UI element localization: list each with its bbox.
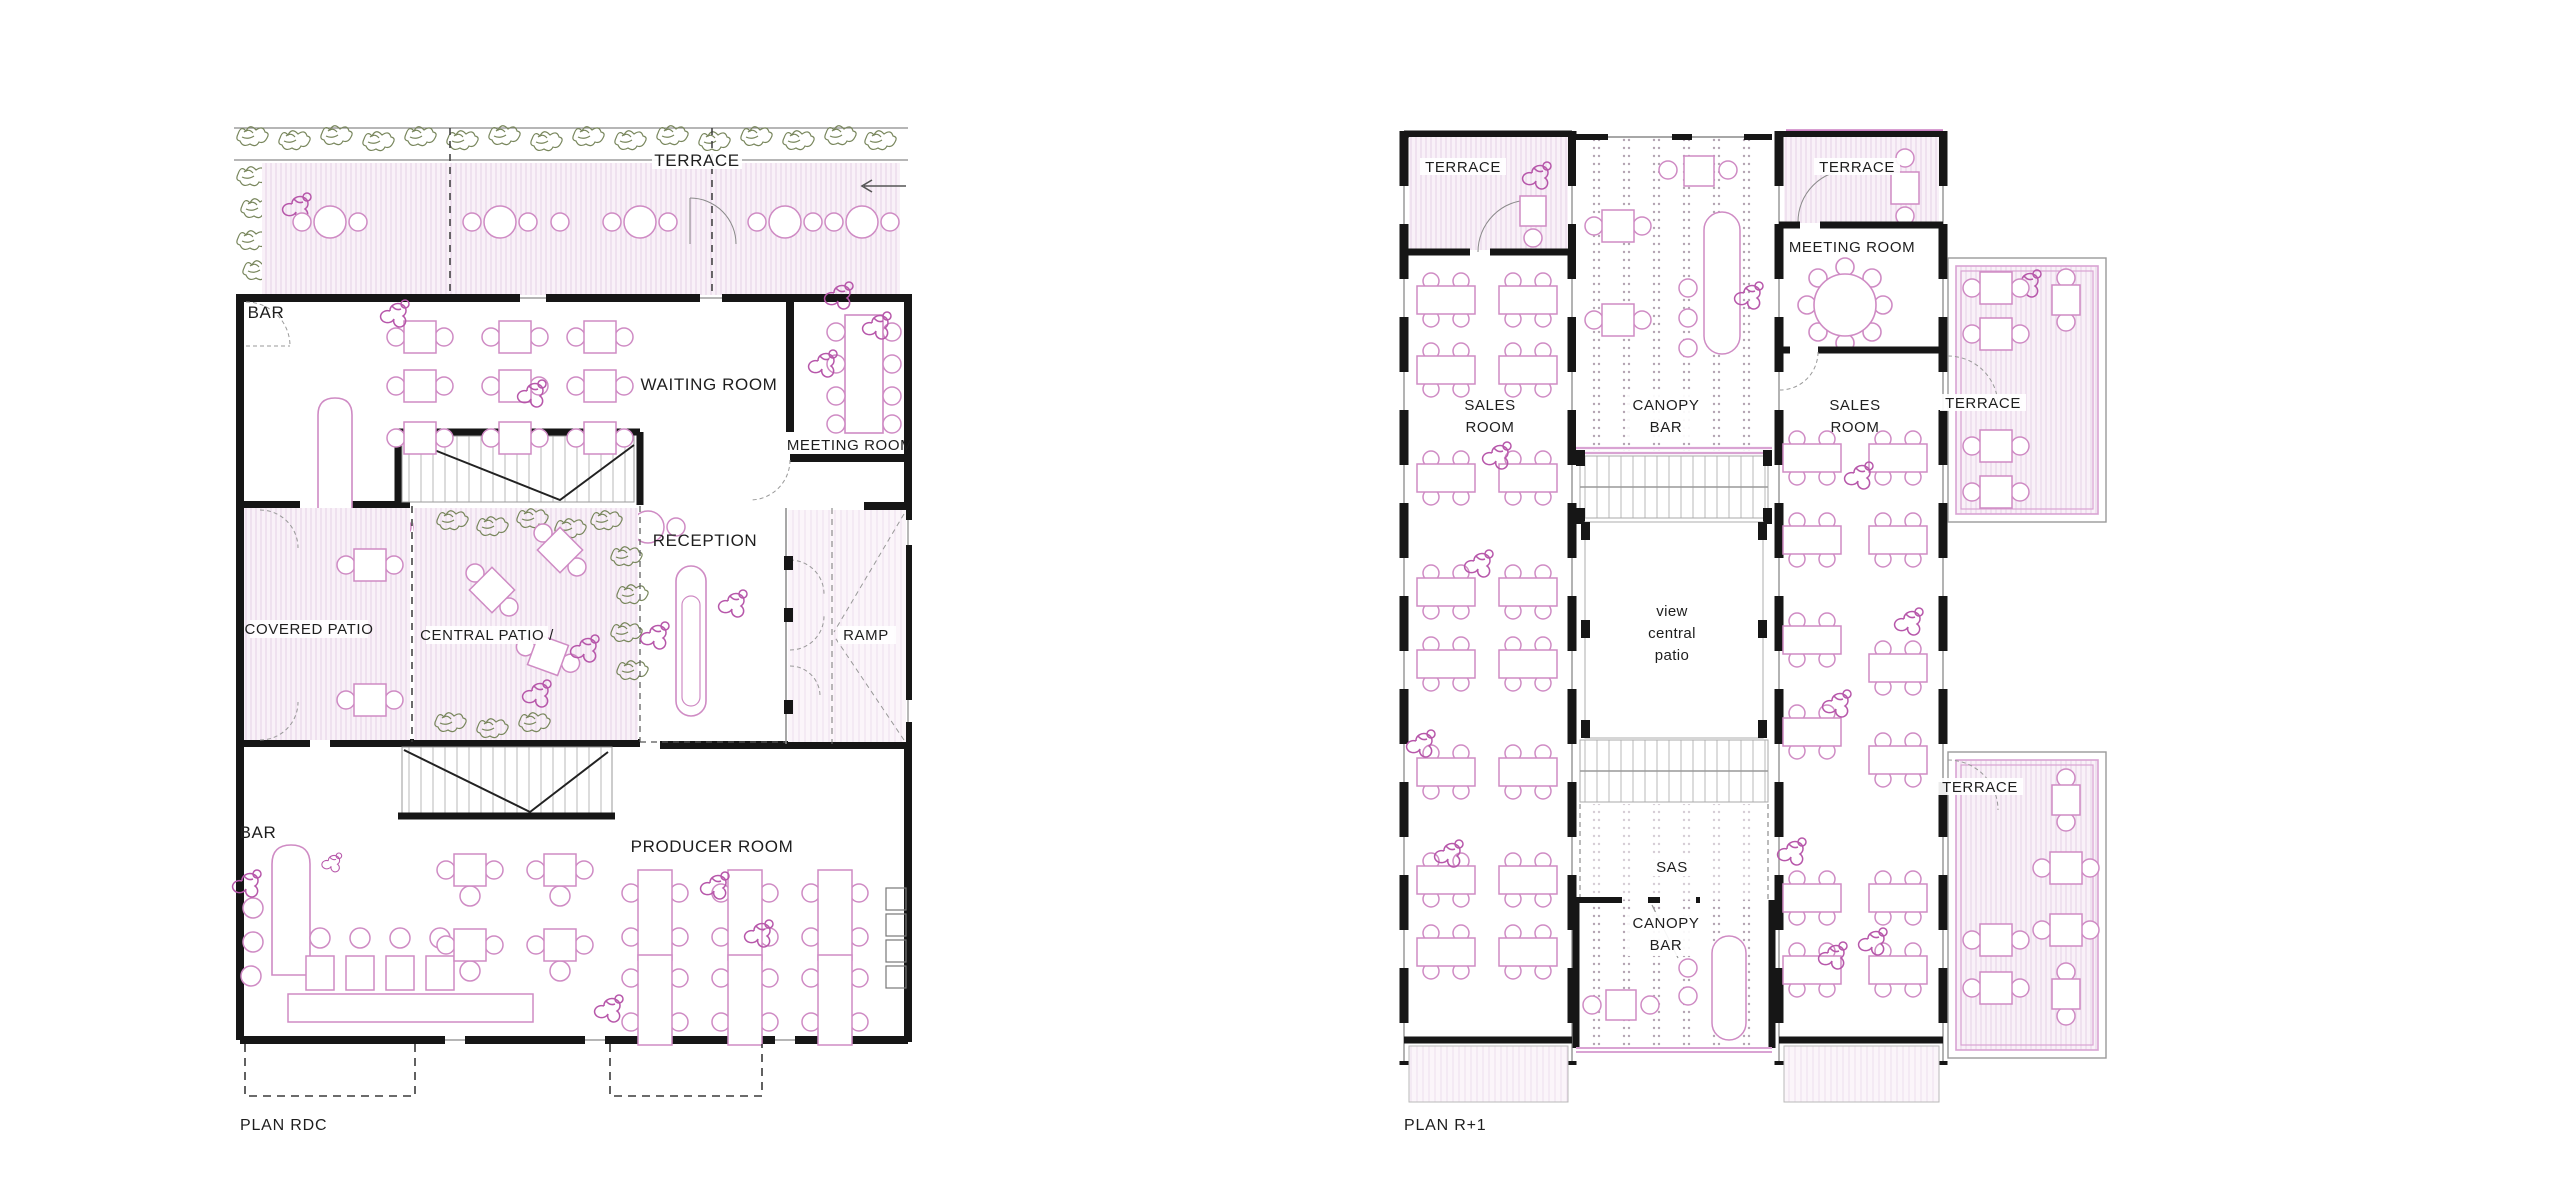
floor-plan-sheet: TERRACE — [0, 0, 2560, 1201]
room-label-terrace-rdc: TERRACE — [654, 151, 739, 170]
left-wing: TERRACE SALES ROOM — [1404, 131, 1572, 1102]
room-label-canopy-bottom-2: BAR — [1650, 937, 1683, 954]
room-label-bar-top: BAR — [248, 303, 285, 322]
plan-rdc: TERRACE — [233, 126, 914, 1134]
room-label-bar-bottom: BAR — [240, 823, 277, 842]
room-label-covered-patio: COVERED PATIO — [245, 621, 374, 638]
room-label-sales-left-2: ROOM — [1465, 419, 1514, 436]
room-label-sales-right-2: ROOM — [1830, 419, 1879, 436]
room-label-terrace-top-left: TERRACE — [1425, 159, 1501, 176]
room-label-meeting-room-r1: MEETING ROOM — [1789, 239, 1915, 256]
room-label-ramp: RAMP — [843, 627, 889, 644]
dashed-canopies — [245, 1044, 762, 1096]
plan-title-r1: PLAN R+1 — [1404, 1117, 1486, 1134]
terrace-rdc: TERRACE — [262, 128, 906, 296]
room-label-meeting-room-rdc: MEETING ROOM — [787, 437, 913, 454]
room-label-terrace-lower-right: TERRACE — [1942, 779, 2018, 796]
terrace-upper-right: TERRACE — [1940, 258, 2106, 522]
room-label-canopy-top-1: CANOPY — [1633, 397, 1700, 414]
terrace-lower-right: TERRACE — [1937, 752, 2106, 1058]
room-label-canopy-bottom-1: CANOPY — [1633, 915, 1700, 932]
room-label-producer-room: PRODUCER ROOM — [631, 837, 794, 856]
view-label-3: patio — [1655, 647, 1690, 664]
reception-area: RECEPTION — [640, 506, 786, 742]
floor-plans-canvas: TERRACE — [0, 0, 2560, 1201]
room-label-central-patio: CENTRAL PATIO / — [420, 627, 554, 644]
waiting-room: WAITING ROOM — [381, 300, 778, 543]
room-label-reception: RECEPTION — [653, 531, 758, 550]
right-wing: TERRACE MEETING ROOM SALES ROOM — [1778, 131, 1943, 1102]
room-label-terrace-upper-right: TERRACE — [1945, 395, 2021, 412]
covered-patio: COVERED PATIO — [244, 508, 410, 740]
room-label-terrace-top-right: TERRACE — [1819, 159, 1895, 176]
room-label-sales-right-1: SALES — [1829, 397, 1880, 414]
room-label-sas: SAS — [1656, 859, 1688, 876]
room-label-canopy-top-2: BAR — [1650, 419, 1683, 436]
stairs-lower-rdc — [398, 743, 615, 816]
view-label-1: view — [1656, 603, 1688, 620]
room-label-sales-left-1: SALES — [1464, 397, 1515, 414]
bar-room-bottom: BAR — [233, 823, 533, 1022]
ramp-area: RAMP — [784, 508, 906, 744]
room-label-waiting-room: WAITING ROOM — [641, 375, 778, 394]
plan-title-rdc: PLAN RDC — [240, 1117, 327, 1134]
view-label-2: central — [1648, 625, 1696, 642]
central-patio: CENTRAL PATIO / — [412, 506, 648, 742]
plan-r1: TERRACE SALES ROOM — [1404, 131, 2106, 1134]
central-column: CANOPY BAR view central patio — [1576, 137, 1772, 1052]
